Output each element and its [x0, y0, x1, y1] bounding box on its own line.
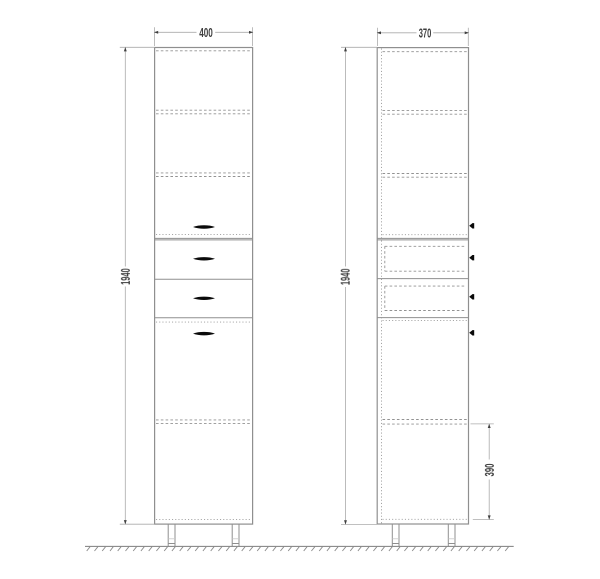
svg-text:400: 400 — [199, 25, 213, 40]
svg-text:370: 370 — [419, 25, 432, 40]
svg-text:390: 390 — [482, 464, 497, 477]
svg-text:1940: 1940 — [338, 269, 353, 286]
svg-text:1940: 1940 — [118, 268, 133, 285]
